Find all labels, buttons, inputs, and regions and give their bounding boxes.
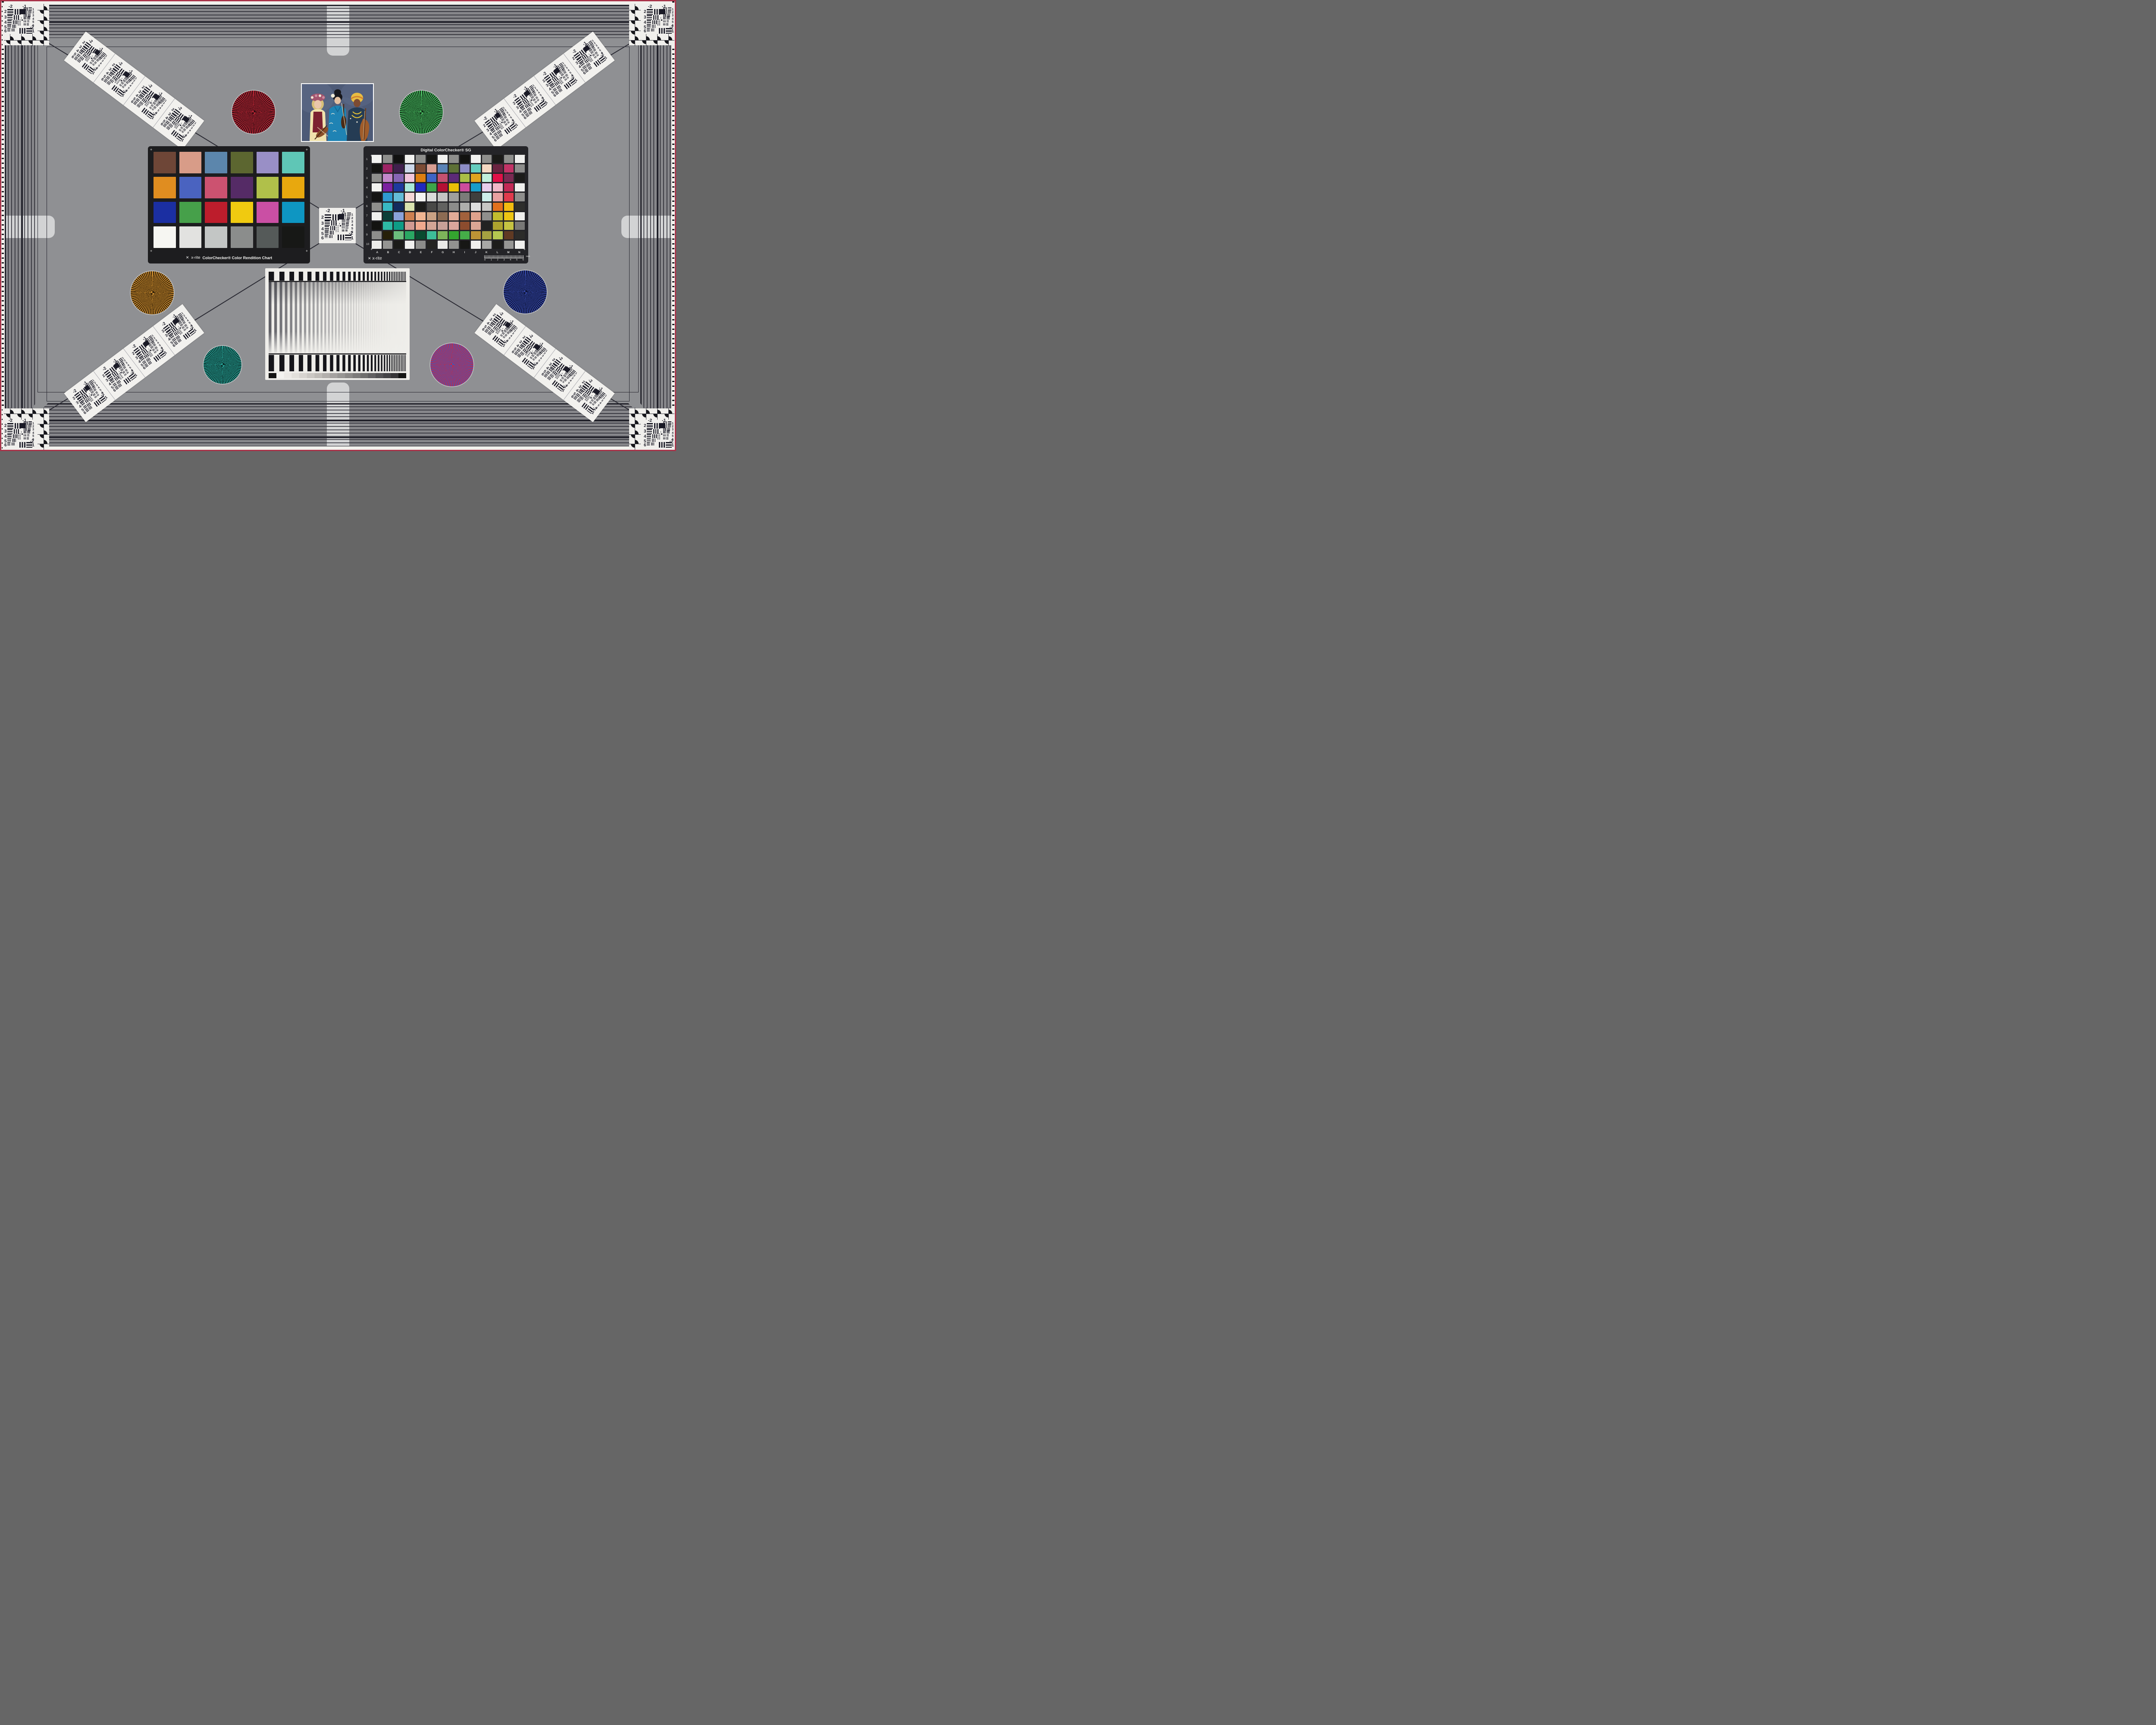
usaf-bar-group [667, 20, 669, 22]
sg-row-label: 3 [366, 177, 372, 180]
usaf-bar-group [663, 425, 667, 428]
usaf-bar-group [564, 78, 567, 81]
usaf-bar-group [7, 25, 11, 28]
color-patch [405, 164, 415, 172]
color-patch [449, 155, 459, 163]
usaf-bar-group [186, 326, 189, 329]
color-patch [405, 193, 415, 201]
usaf-label: 1 [672, 422, 674, 425]
usaf-bar-group [13, 20, 17, 24]
usaf-bar-group [657, 435, 658, 436]
usaf-bar-group [647, 28, 650, 31]
color-patch [438, 155, 448, 163]
usaf-bar-group [342, 223, 345, 225]
usaf-label: 2 [672, 425, 674, 428]
xrite-brand: x-rite [191, 255, 200, 260]
color-patch [257, 226, 279, 248]
usaf-bar-group [347, 216, 350, 219]
usaf-bar-group [535, 100, 538, 103]
usaf-bar-group [647, 9, 653, 15]
usaf-bar-group [647, 439, 651, 442]
usaf-bar-group [325, 231, 329, 235]
usaf-bar-group [667, 425, 671, 428]
color-patch [205, 202, 227, 223]
usaf-bar-group [561, 82, 563, 83]
color-patch [205, 177, 227, 198]
quadrant-circle-mark [642, 410, 650, 417]
quadrant-circle-mark [631, 430, 639, 438]
color-patch [416, 183, 426, 191]
usaf-label: 2 [32, 11, 34, 14]
usaf-bar-group [332, 214, 339, 220]
usaf-bar-group [7, 423, 13, 429]
color-patch [383, 222, 393, 230]
usaf-bar-group [18, 435, 19, 436]
sg-col-label: B [382, 251, 393, 254]
color-patch [383, 212, 393, 220]
color-patch [493, 231, 503, 239]
usaf-bar-group [342, 219, 345, 222]
color-patch [394, 231, 404, 239]
usaf-bar-group [118, 383, 122, 387]
usaf-bar-group [24, 428, 27, 431]
usaf-bar-group [28, 428, 31, 431]
usaf-bar-group [19, 22, 21, 24]
color-patch [231, 152, 253, 173]
usaf-label: 4 [644, 435, 646, 439]
frame-band-lines-right [640, 5, 671, 446]
quadrant-circle-mark [40, 440, 47, 448]
usaf-bar-group [338, 235, 344, 241]
ruler-tick-label: 3 [503, 259, 505, 261]
usaf-label: 1 [32, 443, 34, 448]
usaf-bar-group [667, 431, 669, 433]
usaf-bar-group [342, 216, 345, 219]
color-patch [460, 241, 470, 249]
color-patch [504, 155, 514, 163]
color-patch [416, 203, 426, 211]
color-patch [405, 222, 415, 230]
usaf-bar-group [663, 23, 665, 25]
usaf-bar-group [659, 24, 660, 25]
usaf-bar-group [7, 20, 12, 24]
quadrant-circle-mark [664, 410, 672, 417]
color-patch [460, 183, 470, 191]
color-patch [460, 231, 470, 239]
usaf-label: 1 [32, 8, 34, 11]
usaf-bar-group [663, 437, 665, 439]
usaf-bar-group [181, 332, 182, 334]
usaf-bar-group [345, 226, 348, 229]
usaf-bar-group [24, 425, 27, 428]
color-patch [282, 202, 304, 223]
usaf-bar-group [663, 17, 666, 19]
quadrant-circle-mark [631, 410, 639, 417]
usaf-bar-group [342, 226, 345, 229]
color-patch [460, 193, 470, 201]
color-patch [460, 155, 470, 163]
color-patch [427, 212, 437, 220]
usaf-bar-group [325, 226, 329, 230]
usaf-bar-group [659, 435, 660, 436]
usaf-bar-group [652, 25, 656, 28]
color-patch [504, 231, 514, 239]
usaf-label: 1 [671, 443, 674, 448]
usaf-bar-group [94, 395, 97, 398]
usaf-label: 5 [672, 435, 674, 438]
color-patch [257, 152, 279, 173]
usaf-label: 6 [644, 29, 646, 34]
color-patch [394, 212, 404, 220]
color-patch [438, 193, 448, 201]
color-patch [405, 203, 415, 211]
usaf-bar-group [346, 223, 349, 225]
usaf-bar-group [19, 21, 21, 22]
usaf-bar-group [18, 19, 19, 21]
color-patch [383, 231, 393, 239]
usaf-bar-group [7, 442, 10, 445]
usaf-label: 3 [672, 428, 674, 431]
color-patch [482, 212, 492, 220]
usaf-bar-group [666, 437, 668, 439]
usaf-bar-group [659, 19, 660, 21]
usaf-bar-group [647, 429, 652, 434]
usaf-bar-group [92, 399, 94, 401]
color-patch [372, 212, 382, 220]
quadrant-circle-mark [40, 430, 47, 438]
color-patch [282, 226, 304, 248]
sg-col-label: E [415, 251, 426, 254]
color-patch [383, 155, 393, 163]
color-patch [482, 155, 492, 163]
usaf-bar-group [558, 88, 562, 92]
ruler-tick-label: 0 [484, 259, 486, 261]
usaf-bar-group [177, 339, 181, 342]
usaf-bar-group [183, 329, 186, 331]
usaf-bar-group [7, 429, 13, 434]
usaf-bar-group [24, 17, 26, 19]
color-patch [471, 174, 481, 182]
color-patch [394, 203, 404, 211]
usaf-bar-group [647, 434, 651, 438]
color-patch [205, 152, 227, 173]
usaf-label: 0 [18, 431, 19, 433]
color-patch [471, 193, 481, 201]
ruler-tick-label: 1 [491, 259, 492, 261]
color-patch [394, 241, 404, 249]
color-patch [449, 212, 459, 220]
usaf-bar-group [330, 231, 334, 235]
usaf-bar-group [27, 437, 29, 439]
color-patch [504, 241, 514, 249]
siemens-green-star [400, 91, 443, 134]
color-patch [257, 202, 279, 223]
registration-plus-icon: + [150, 148, 152, 152]
siemens-blue-star [504, 270, 547, 314]
color-patch [460, 174, 470, 182]
colorchecker-classic-chart: + + + + ✕x-riteColorChecker® Color Rendi… [148, 146, 310, 263]
usaf-bar-group [651, 442, 654, 445]
registration-plus-icon: + [306, 249, 308, 253]
color-patch [482, 222, 492, 230]
color-patch [460, 164, 470, 172]
frame-band-lines-top [5, 5, 671, 36]
color-patch [372, 231, 382, 239]
usaf-label: 1 [32, 29, 34, 34]
ruler-unit: mm [526, 255, 530, 258]
usaf-bar-group [325, 235, 328, 238]
usaf-bar-group [12, 442, 15, 445]
usaf-bar-group [88, 406, 92, 410]
color-patch [460, 212, 470, 220]
color-patch [515, 174, 525, 182]
musicians-photo [301, 83, 374, 142]
color-patch [394, 193, 404, 201]
color-patch [179, 202, 202, 223]
sg-row-label: 5 [366, 196, 372, 199]
usaf-label: 4 [32, 432, 34, 435]
usaf-bar-group [156, 349, 159, 351]
usaf-bar-group [667, 14, 670, 17]
registration-plus-icon: + [370, 154, 373, 158]
color-patch [471, 241, 481, 249]
quadrant-circle-mark [6, 410, 14, 417]
color-patch [179, 152, 202, 173]
color-patch [282, 152, 304, 173]
usaf-label: 6 [321, 236, 324, 241]
usaf-label: 2 [644, 424, 646, 428]
sg-col-label: N [514, 251, 525, 254]
xrite-brand: x-rite [373, 256, 382, 261]
usaf-bar-group [505, 123, 508, 125]
color-patch [438, 164, 448, 172]
usaf-label: 4 [672, 432, 674, 435]
color-patch [383, 241, 393, 249]
color-patch [394, 174, 404, 182]
color-patch [493, 241, 503, 249]
usaf-bar-group [594, 56, 597, 59]
usaf-label: 6 [644, 443, 646, 448]
usaf-bar-group [647, 20, 651, 24]
usaf-bar-group [116, 82, 118, 84]
quadrant-circle-mark [17, 410, 25, 417]
quadrant-circle-mark [40, 27, 47, 34]
color-patch [231, 202, 253, 223]
usaf-bar-group [663, 11, 667, 14]
color-patch [515, 164, 525, 172]
color-patch [482, 231, 492, 239]
usaf-bar-group [657, 433, 658, 435]
color-patch [504, 183, 514, 191]
usaf-label: 0 [336, 223, 337, 225]
color-patch [372, 164, 382, 172]
usaf-bar-group [13, 439, 16, 442]
quadrant-circle-mark [631, 36, 639, 44]
usaf-bar-group [325, 220, 330, 226]
usaf-bar-group [346, 219, 350, 222]
usaf-bar-group [19, 442, 25, 448]
color-patch [493, 183, 503, 191]
usaf-label: 2 [4, 424, 6, 428]
usaf-bar-group [657, 438, 658, 439]
color-patch [449, 174, 459, 182]
usaf-bar-group [652, 439, 656, 442]
color-patch [449, 193, 459, 201]
color-patch [282, 177, 304, 198]
mm-ruler: 0123456 mm [484, 255, 524, 261]
color-patch [438, 231, 448, 239]
frequency-sweep-chart [265, 268, 410, 380]
usaf-bar-group [7, 9, 13, 15]
usaf-label: 3 [4, 430, 6, 434]
color-patch [438, 212, 448, 220]
usaf-label: 1 [21, 17, 22, 19]
sg-col-label: C [394, 251, 404, 254]
color-patch [179, 226, 202, 248]
color-patch [231, 226, 253, 248]
color-patch [449, 183, 459, 191]
color-patch [372, 155, 382, 163]
usaf-bar-group [532, 104, 534, 106]
color-patch [372, 203, 382, 211]
usaf-bar-group [657, 21, 658, 22]
ruler-tick-label: 2 [497, 259, 498, 261]
color-patch [416, 193, 426, 201]
usaf-bar-group [659, 433, 660, 435]
usaf-bar-group [24, 11, 27, 14]
usaf-label: 3 [644, 430, 646, 434]
color-patch [372, 241, 382, 249]
colorchecker-sg-chart: Digital ColorChecker® SG + + + + 1234567… [364, 146, 528, 263]
usaf-bar-group [502, 126, 504, 128]
siemens-red-star [232, 91, 275, 134]
color-patch [383, 203, 393, 211]
usaf-bar-group [338, 227, 339, 228]
color-patch [515, 203, 525, 211]
usaf-bar-group [335, 227, 337, 228]
usaf-bar-group [591, 60, 593, 61]
usaf-bar-group [19, 435, 21, 436]
usaf-bar-group [86, 60, 88, 62]
colorchecker-caption: ✕x-riteColorChecker® Color Rendition Cha… [148, 255, 310, 260]
registration-plus-icon: + [523, 248, 526, 251]
color-patch [405, 231, 415, 239]
usaf-bar-group [151, 354, 153, 356]
usaf-bar-group [13, 25, 16, 28]
usaf-bar-group [97, 394, 100, 396]
color-patch [471, 183, 481, 191]
usaf-bar-group [529, 111, 533, 115]
usaf-bar-group [654, 423, 660, 429]
corner-target-top-right: -2-123456123456-2101 [629, 4, 676, 45]
ruler-ticks [484, 255, 524, 258]
color-patch [493, 193, 503, 201]
usaf-bar-group [28, 11, 31, 14]
color-patch [449, 203, 459, 211]
sg-col-label: H [448, 251, 459, 254]
color-patch [471, 222, 481, 230]
usaf-bar-group [659, 438, 660, 439]
usaf-label: 4 [321, 227, 324, 232]
usaf-bar-group [19, 438, 21, 439]
color-patch [416, 164, 426, 172]
usaf-bar-group [567, 76, 570, 79]
color-patch [427, 183, 437, 191]
colorchecker-caption-text: ColorChecker® Color Rendition Chart [203, 256, 273, 260]
usaf-bar-group [663, 20, 666, 22]
usaf-bar-group [122, 376, 123, 378]
quadrant-circle-mark [40, 16, 47, 24]
color-patch [449, 222, 459, 230]
color-patch [493, 155, 503, 163]
usaf-label: 6 [4, 443, 6, 448]
usaf-bar-group [338, 225, 339, 226]
color-patch [427, 231, 437, 239]
usaf-label: 5 [672, 21, 674, 24]
color-patch [383, 174, 393, 182]
color-patch [482, 174, 492, 182]
usaf-bar-group [342, 229, 345, 232]
quadrant-circle-mark [40, 36, 47, 44]
siemens-orange-star [131, 271, 174, 314]
color-patch [482, 203, 492, 211]
usaf-bar-group [24, 431, 26, 433]
usaf-bar-group [28, 14, 31, 17]
color-patch [427, 174, 437, 182]
sg-col-label: I [459, 251, 470, 254]
usaf-label: 4 [644, 21, 646, 25]
usaf-bar-group [596, 54, 599, 56]
usaf-bar-group [667, 434, 669, 436]
usaf-bar-group [19, 436, 21, 438]
color-patch [154, 226, 176, 248]
usaf-bar-group [18, 436, 19, 438]
usaf-label: -2 [9, 418, 13, 423]
colorchecker-patch-grid [154, 152, 304, 248]
color-patch [427, 155, 437, 163]
usaf-bar-group [24, 434, 26, 436]
usaf-bar-group [657, 22, 658, 24]
usaf-bar-group [586, 400, 588, 401]
color-patch [515, 193, 525, 201]
usaf-label: 4 [32, 18, 34, 21]
quadrant-circle-mark [631, 6, 639, 14]
usaf-label: 1 [21, 431, 22, 433]
usaf-label: 6 [4, 29, 6, 34]
usaf-bar-group [497, 332, 498, 334]
color-patch [416, 212, 426, 220]
usaf-bar-group [667, 11, 671, 14]
usaf-bar-group [338, 230, 339, 232]
sg-row-label: 1 [366, 158, 372, 161]
usaf-label: 3 [32, 428, 34, 431]
sg-brand-logo: ✕ x-rite [368, 256, 382, 261]
usaf-label: 1 [661, 431, 661, 433]
usaf-bar-group [24, 437, 26, 439]
usaf-bar-group [663, 431, 666, 433]
usaf-bar-group [28, 425, 31, 428]
sg-row-label: 6 [366, 205, 372, 208]
sg-col-label: D [404, 251, 415, 254]
usaf-bar-group [345, 229, 348, 232]
usaf-bar-group [27, 20, 30, 22]
usaf-bar-group [7, 434, 12, 438]
usaf-label: 3 [644, 16, 646, 20]
xrite-logo-icon: ✕ [186, 255, 189, 260]
color-patch [515, 231, 525, 239]
usaf-bar-group [27, 23, 29, 25]
color-patch [515, 222, 525, 230]
